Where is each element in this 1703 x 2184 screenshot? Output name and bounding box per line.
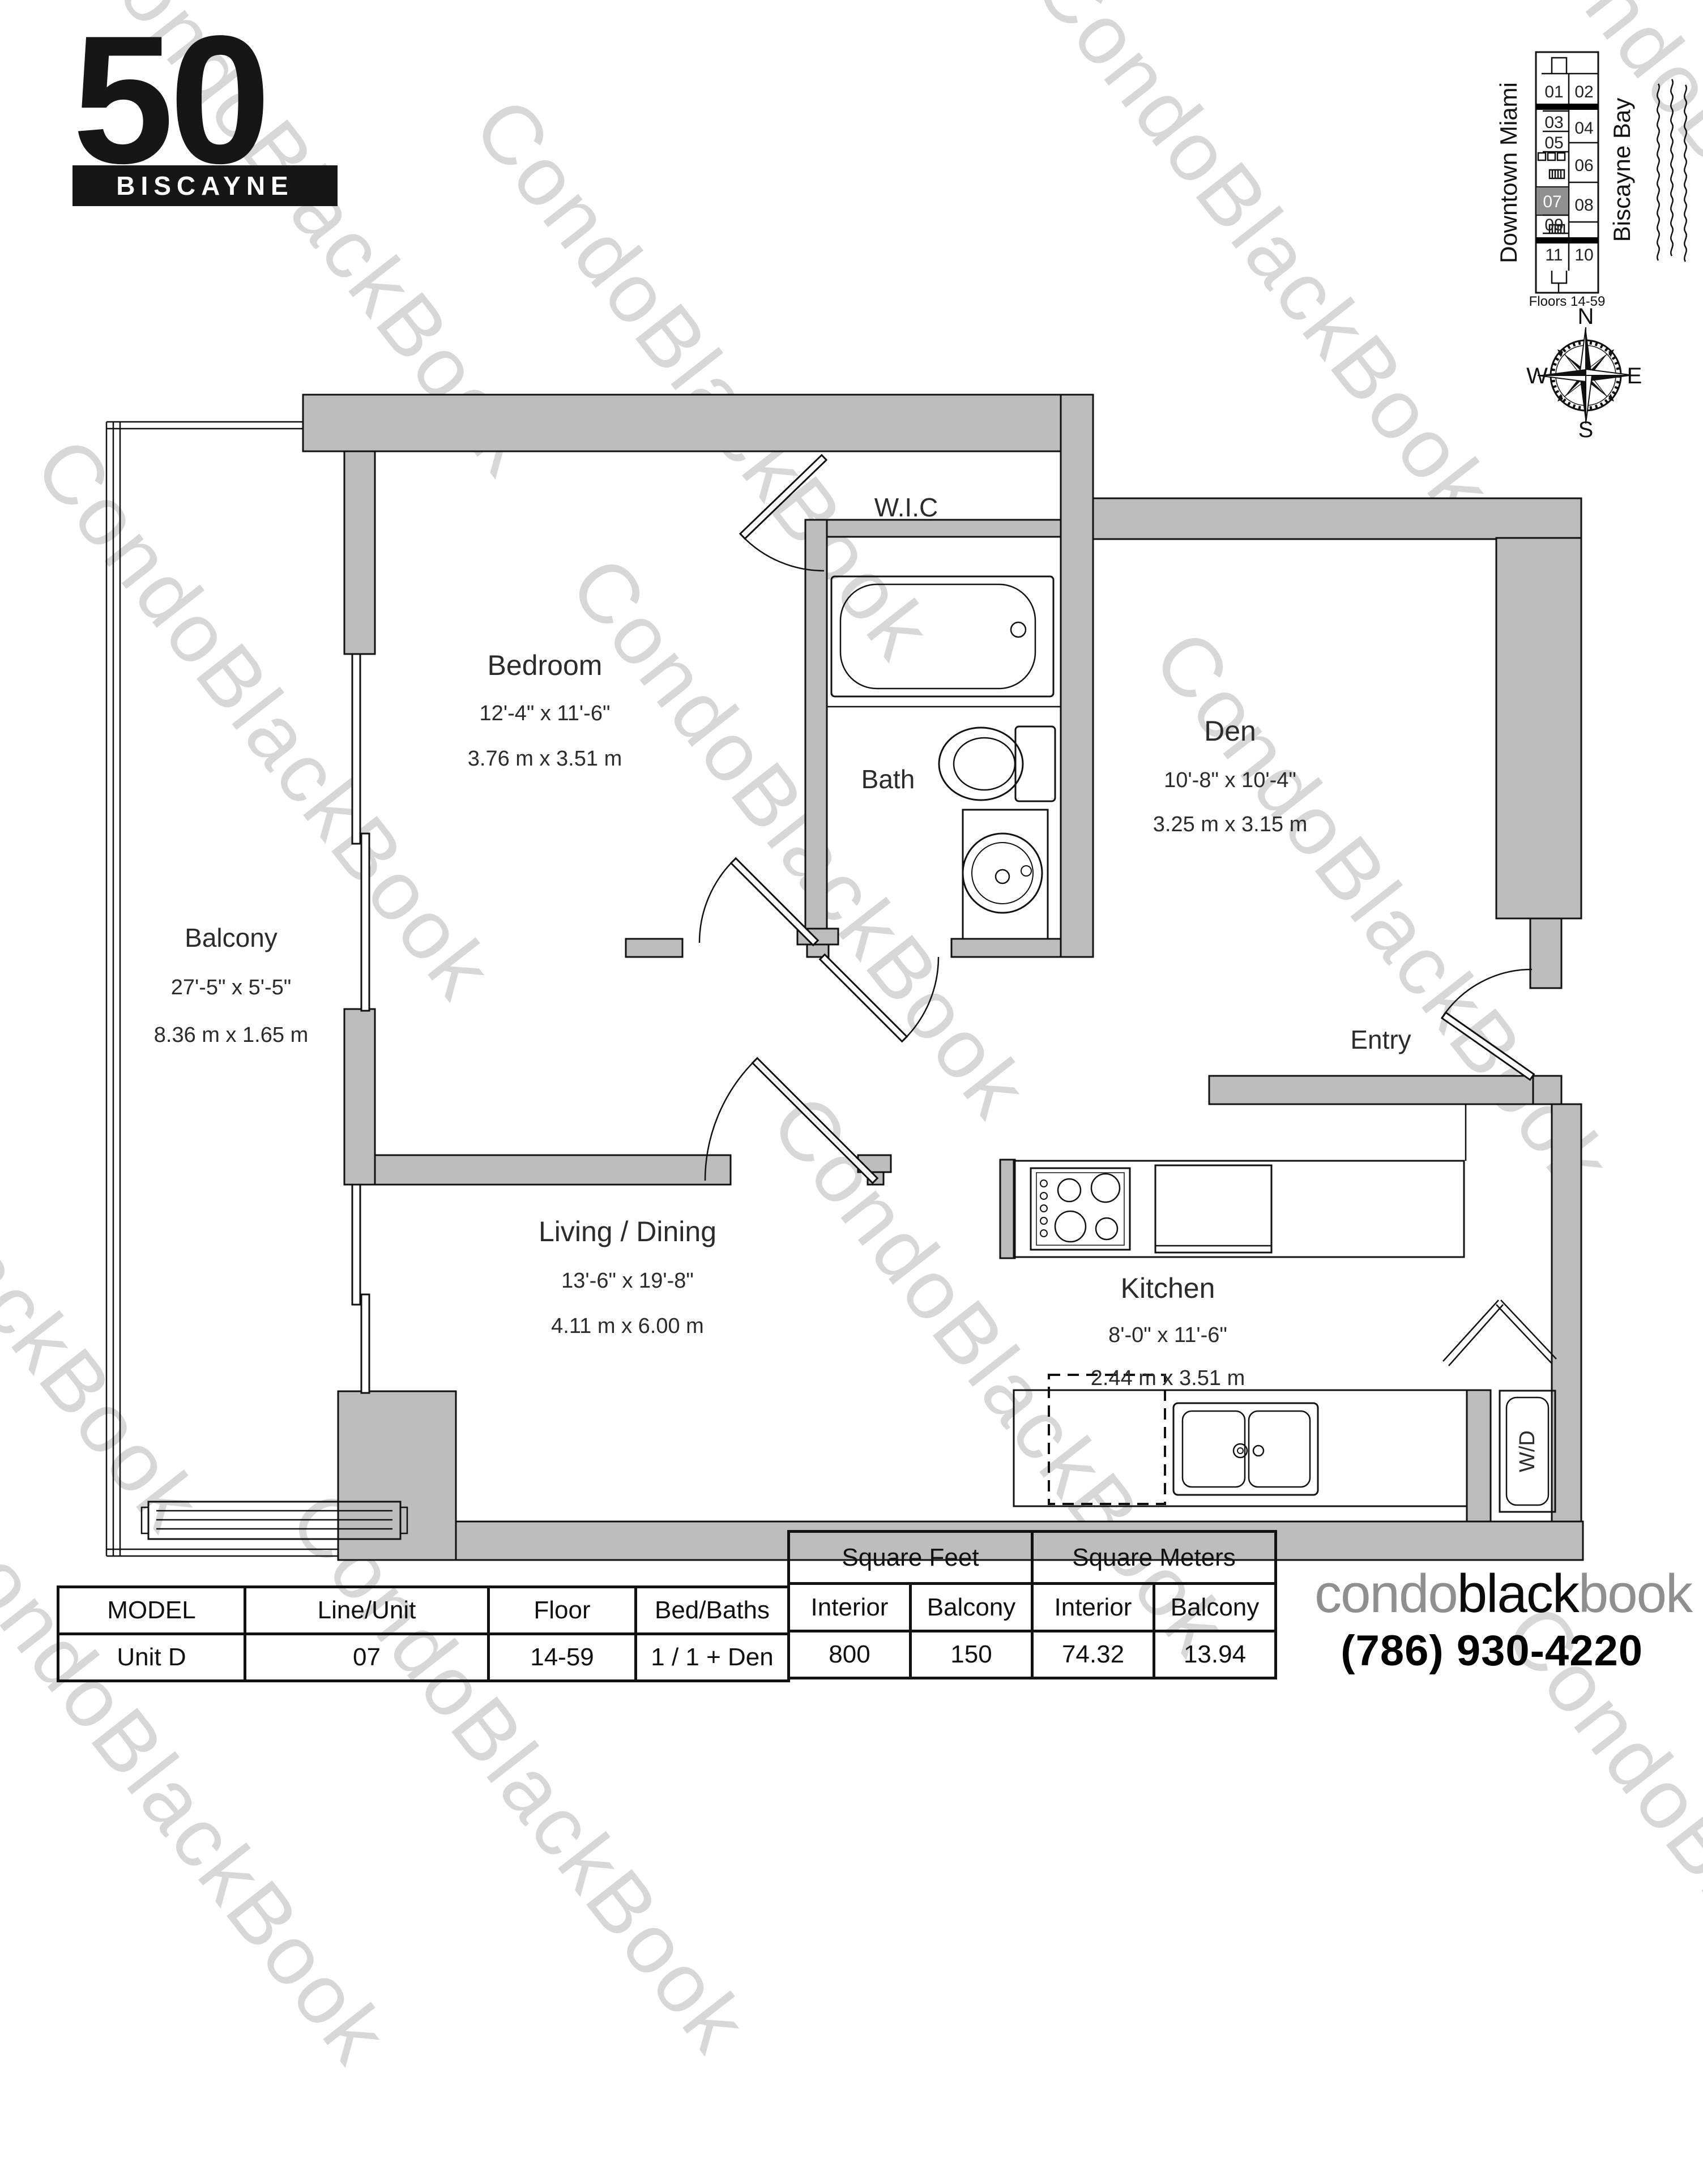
svg-text:13'-6" x 19'-8": 13'-6" x 19'-8": [561, 1269, 694, 1293]
compass-east-label: E: [1627, 364, 1642, 388]
walls: [303, 395, 1583, 1560]
svg-text:3.76 m x 3.51 m: 3.76 m x 3.51 m: [468, 747, 622, 771]
key-plan-unit: 10: [1574, 246, 1593, 264]
svg-text:Entry: Entry: [1350, 1025, 1411, 1054]
floor-plan: 01 02 03 04 05 06 07 08 09 11 10 Downtow…: [0, 0, 1703, 1701]
svg-text:Bath: Bath: [861, 764, 915, 794]
cooktop: [1031, 1168, 1130, 1250]
washer-dryer-label: W/D: [1516, 1430, 1539, 1472]
bed-baths-header: Bed/Baths: [636, 1587, 789, 1634]
svg-text:10'-8" x 10'-4": 10'-8" x 10'-4": [1164, 768, 1296, 792]
svg-text:3.25 m x 3.15 m: 3.25 m x 3.15 m: [1153, 813, 1307, 836]
kitchen-sink: [1173, 1403, 1318, 1495]
phone-number: (786) 930-4220: [1341, 1626, 1643, 1676]
key-plan-unit-highlighted: 07: [1543, 193, 1561, 211]
room-label-wic: W.I.C: [874, 493, 938, 522]
key-plan-unit: 08: [1574, 196, 1593, 215]
bathtub: [831, 576, 1053, 696]
square-feet-header: Square Feet: [789, 1532, 1032, 1584]
svg-text:Den: Den: [1204, 715, 1256, 747]
logo-book: book: [1578, 1563, 1692, 1624]
room-label-den: Den 10'-8" x 10'-4" 3.25 m x 3.15 m: [1153, 715, 1307, 836]
key-plan-unit: 09: [1544, 216, 1563, 234]
svg-text:4.11 m x 6.00 m: 4.11 m x 6.00 m: [551, 1314, 704, 1338]
unit-spec-table-right: Square Feet Square Meters Interior Balco…: [787, 1530, 1277, 1679]
compass-icon: N E S W: [1526, 304, 1642, 442]
water-waves-icon: [1657, 79, 1686, 262]
toilet: [939, 726, 1055, 801]
sqft-interior-header: Interior: [789, 1584, 911, 1631]
sqft-balcony-value: 150: [911, 1631, 1032, 1678]
compass-south-label: S: [1578, 417, 1594, 442]
floor-value: 14-59: [489, 1634, 636, 1681]
room-label-living: Living / Dining 13'-6" x 19'-8" 4.11 m x…: [539, 1216, 716, 1338]
bed-baths-value: 1 / 1 + Den: [636, 1634, 789, 1681]
bedroom-door: [699, 858, 818, 945]
room-label-kitchen: Kitchen 8'-0" x 11'-6" 2.44 m x 3.51 m: [1091, 1272, 1245, 1390]
key-plan: 01 02 03 04 05 06 07 08 09 11 10 Downtow…: [1495, 52, 1687, 309]
bathroom-sink: [963, 810, 1048, 939]
compass-west-label: W: [1526, 364, 1548, 388]
svg-text:27'-5" x 5'-5": 27'-5" x 5'-5": [171, 976, 292, 999]
room-label-entry: Entry: [1350, 1025, 1411, 1054]
condoblackbook-logo: condoblackbook: [1314, 1563, 1692, 1625]
entry-door: [1442, 969, 1534, 1080]
sqft-interior-value: 800: [789, 1631, 911, 1678]
key-plan-unit: 04: [1574, 119, 1593, 138]
svg-text:Kitchen: Kitchen: [1121, 1272, 1215, 1304]
bath-door: [820, 955, 938, 1041]
key-plan-unit: 01: [1544, 83, 1563, 101]
room-label-balcony: Balcony 27'-5" x 5'-5" 8.36 m x 1.65 m: [154, 923, 308, 1047]
svg-text:2.44 m x 3.51 m: 2.44 m x 3.51 m: [1091, 1366, 1245, 1390]
bifold-doors: [1443, 1300, 1556, 1366]
svg-text:Living / Dining: Living / Dining: [539, 1216, 716, 1247]
washer-dryer: W/D: [1500, 1391, 1555, 1512]
key-plan-unit: 03: [1544, 113, 1563, 132]
square-meters-header: Square Meters: [1032, 1532, 1276, 1584]
model-value: Unit D: [58, 1634, 245, 1681]
svg-text:W.I.C: W.I.C: [874, 493, 938, 522]
key-plan-left-label: Downtown Miami: [1495, 82, 1522, 263]
key-plan-unit: 06: [1574, 156, 1593, 175]
svg-text:12'-4" x 11'-6": 12'-4" x 11'-6": [480, 702, 611, 725]
logo-condo: condo: [1314, 1563, 1457, 1624]
floor-header: Floor: [489, 1587, 636, 1634]
refrigerator: [1155, 1165, 1271, 1253]
logo-black: black: [1457, 1563, 1578, 1624]
svg-text:Balcony: Balcony: [185, 923, 278, 952]
key-plan-right-label: Biscayne Bay: [1608, 98, 1635, 242]
building-logo-number: 50: [72, 9, 338, 191]
sqft-balcony-header: Balcony: [911, 1584, 1032, 1631]
model-header: MODEL: [58, 1587, 245, 1634]
compass-north-label: N: [1578, 304, 1594, 329]
sqm-interior-header: Interior: [1032, 1584, 1154, 1631]
building-logo: 50 BISCAYNE: [72, 9, 338, 206]
dishwasher: [1049, 1375, 1165, 1504]
room-label-bedroom: Bedroom 12'-4" x 11'-6" 3.76 m x 3.51 m: [468, 649, 622, 771]
sqm-interior-value: 74.32: [1032, 1631, 1154, 1678]
key-plan-unit: 02: [1574, 83, 1593, 101]
sqm-balcony-value: 13.94: [1154, 1631, 1276, 1678]
sqm-balcony-header: Balcony: [1154, 1584, 1276, 1631]
elevator-hatch-icon: [1550, 170, 1564, 178]
unit-spec-table-left: MODEL Line/Unit Floor Bed/Baths Unit D 0…: [57, 1585, 790, 1682]
svg-text:Bedroom: Bedroom: [488, 649, 603, 681]
line-unit-header: Line/Unit: [245, 1587, 489, 1634]
key-plan-unit: 11: [1545, 246, 1563, 264]
svg-text:8'-0" x 11'-6": 8'-0" x 11'-6": [1108, 1323, 1227, 1347]
building-logo-name: BISCAYNE: [116, 170, 293, 201]
key-plan-unit: 05: [1544, 134, 1563, 152]
svg-text:8.36 m x 1.65 m: 8.36 m x 1.65 m: [154, 1023, 308, 1047]
kitchen-counter-north: [1014, 1104, 1466, 1257]
room-label-bath: Bath: [861, 764, 915, 794]
line-unit-value: 07: [245, 1634, 489, 1681]
